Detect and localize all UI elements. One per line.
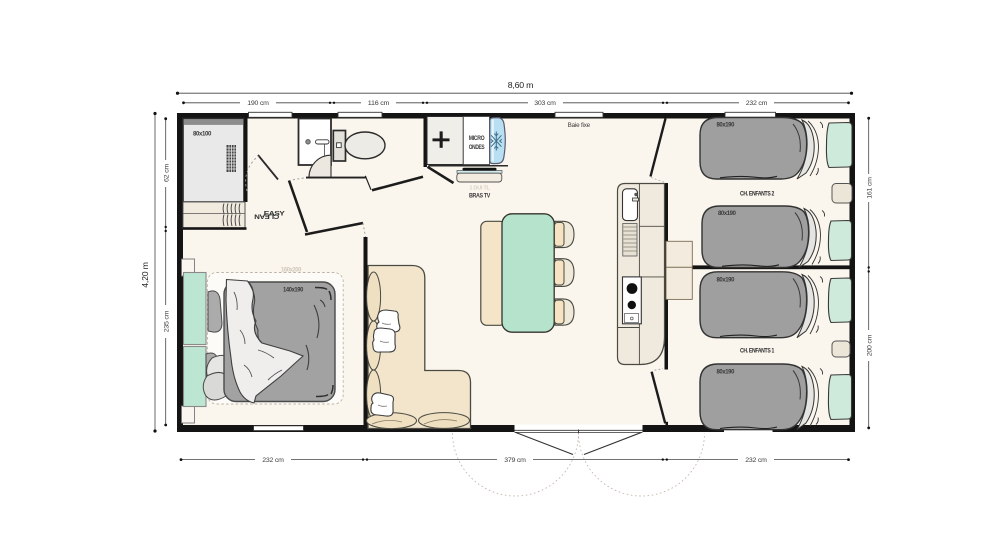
- svg-text:190 cm: 190 cm: [247, 100, 269, 107]
- svg-text:303 cm: 303 cm: [534, 100, 556, 107]
- svg-text:232 cm: 232 cm: [745, 457, 767, 464]
- svg-text:ONDES: ONDES: [469, 144, 485, 151]
- svg-text:161 cm: 161 cm: [867, 177, 874, 199]
- svg-text:160x200: 160x200: [281, 268, 302, 274]
- svg-text:1 DUI TL: 1 DUI TL: [469, 186, 490, 192]
- svg-text:140x190: 140x190: [283, 287, 304, 294]
- svg-text:MICRO: MICRO: [469, 135, 485, 142]
- svg-text:80x190: 80x190: [717, 122, 735, 129]
- svg-text:116 cm: 116 cm: [368, 100, 390, 107]
- svg-text:80x190: 80x190: [717, 369, 735, 376]
- svg-text:80x190: 80x190: [717, 276, 735, 283]
- svg-text:Baie fixe: Baie fixe: [568, 122, 591, 129]
- svg-text:232 cm: 232 cm: [746, 100, 768, 107]
- svg-text:CLEAN: CLEAN: [254, 212, 279, 219]
- svg-text:80x190: 80x190: [718, 210, 736, 217]
- svg-text:CH. ENFANTS 1: CH. ENFANTS 1: [740, 348, 775, 355]
- svg-text:CH. ENFANTS 2: CH. ENFANTS 2: [740, 190, 775, 197]
- svg-text:4,20 m: 4,20 m: [140, 262, 150, 288]
- svg-text:BRAS TV: BRAS TV: [469, 193, 491, 200]
- svg-text:80x100: 80x100: [193, 131, 212, 138]
- svg-text:232 cm: 232 cm: [262, 457, 284, 464]
- svg-text:200 cm: 200 cm: [867, 335, 874, 357]
- svg-text:8,60 m: 8,60 m: [508, 80, 534, 90]
- svg-text:379 cm: 379 cm: [504, 457, 526, 464]
- svg-text:235 cm: 235 cm: [164, 311, 171, 333]
- svg-text:62 cm: 62 cm: [164, 164, 171, 182]
